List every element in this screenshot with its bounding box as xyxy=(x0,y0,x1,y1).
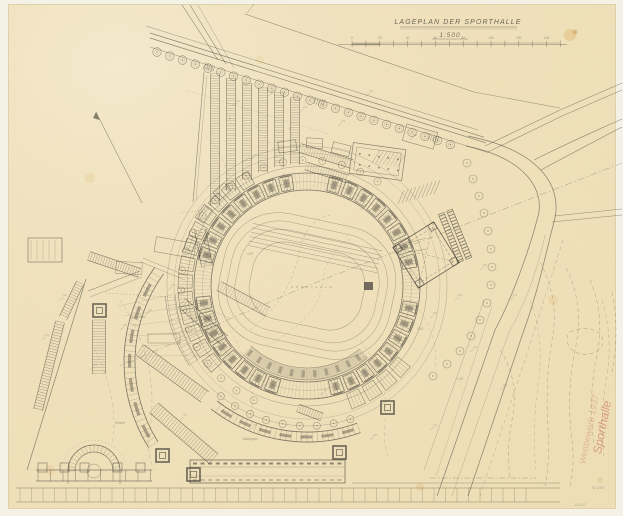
svg-text:60: 60 xyxy=(434,36,438,40)
svg-text:1,9: 1,9 xyxy=(433,423,437,427)
svg-text:3,1: 3,1 xyxy=(303,433,307,437)
svg-text:4,1: 4,1 xyxy=(171,283,175,287)
svg-text:20: 20 xyxy=(378,36,382,40)
svg-text:3,20: 3,20 xyxy=(347,197,353,201)
svg-text:2,6: 2,6 xyxy=(253,153,257,157)
svg-text:6,7: 6,7 xyxy=(45,333,49,337)
svg-text:2,3: 2,3 xyxy=(148,308,152,312)
svg-text:7,1: 7,1 xyxy=(208,248,212,252)
svg-text:3,3: 3,3 xyxy=(363,203,367,207)
svg-text:1,8: 1,8 xyxy=(369,89,373,93)
svg-text:4,7: 4,7 xyxy=(183,413,187,417)
svg-text:2,8: 2,8 xyxy=(303,105,307,109)
svg-text:S P O R T F E L D: S P O R T F E L D xyxy=(291,285,332,289)
svg-text:1,9: 1,9 xyxy=(223,343,227,347)
svg-text:4,0: 4,0 xyxy=(323,388,327,392)
svg-text:M 1/50: M 1/50 xyxy=(592,485,605,490)
svg-text:5,3: 5,3 xyxy=(513,293,517,297)
svg-text:4,0: 4,0 xyxy=(413,133,417,137)
svg-text:Reitgarten: Reitgarten xyxy=(131,315,146,319)
svg-text:120: 120 xyxy=(516,36,522,40)
svg-text:8,5: 8,5 xyxy=(483,263,487,267)
svg-text:1,9: 1,9 xyxy=(93,363,97,367)
svg-text:7,0: 7,0 xyxy=(263,383,267,387)
svg-text:5,8: 5,8 xyxy=(373,433,377,437)
svg-text:2,80: 2,80 xyxy=(416,327,423,331)
svg-text:0: 0 xyxy=(351,36,353,40)
svg-text:5,6: 5,6 xyxy=(398,338,402,342)
svg-text:2,5: 2,5 xyxy=(341,119,345,123)
svg-text:9,6: 9,6 xyxy=(123,323,127,327)
svg-text:4,50: 4,50 xyxy=(247,252,253,256)
svg-text:9,2: 9,2 xyxy=(363,355,367,359)
svg-text:2,9: 2,9 xyxy=(503,383,507,387)
svg-text:80: 80 xyxy=(461,36,465,40)
svg-text:140: 140 xyxy=(544,36,550,40)
svg-text:1,50: 1,50 xyxy=(457,377,463,381)
svg-text:6,2: 6,2 xyxy=(236,99,240,103)
svg-text:40: 40 xyxy=(406,36,410,40)
svg-text:Reithof: Reithof xyxy=(115,421,126,425)
svg-text:7,0: 7,0 xyxy=(271,89,275,93)
svg-text:100: 100 xyxy=(488,36,494,40)
svg-text:Stallungen: Stallungen xyxy=(242,437,257,441)
svg-text:2,9: 2,9 xyxy=(458,293,462,297)
svg-text:3,8: 3,8 xyxy=(433,311,437,315)
svg-text:14.4.37: 14.4.37 xyxy=(574,503,587,507)
svg-text:4,5: 4,5 xyxy=(253,423,257,427)
svg-text:2,8: 2,8 xyxy=(473,345,477,349)
svg-text:LAGEPLAN DER SPORTHALLE: LAGEPLAN DER SPORTHALLE xyxy=(394,19,521,26)
svg-text:1:500: 1:500 xyxy=(439,32,460,39)
svg-text:9,6: 9,6 xyxy=(63,293,67,297)
svg-text:2,9: 2,9 xyxy=(233,213,237,217)
